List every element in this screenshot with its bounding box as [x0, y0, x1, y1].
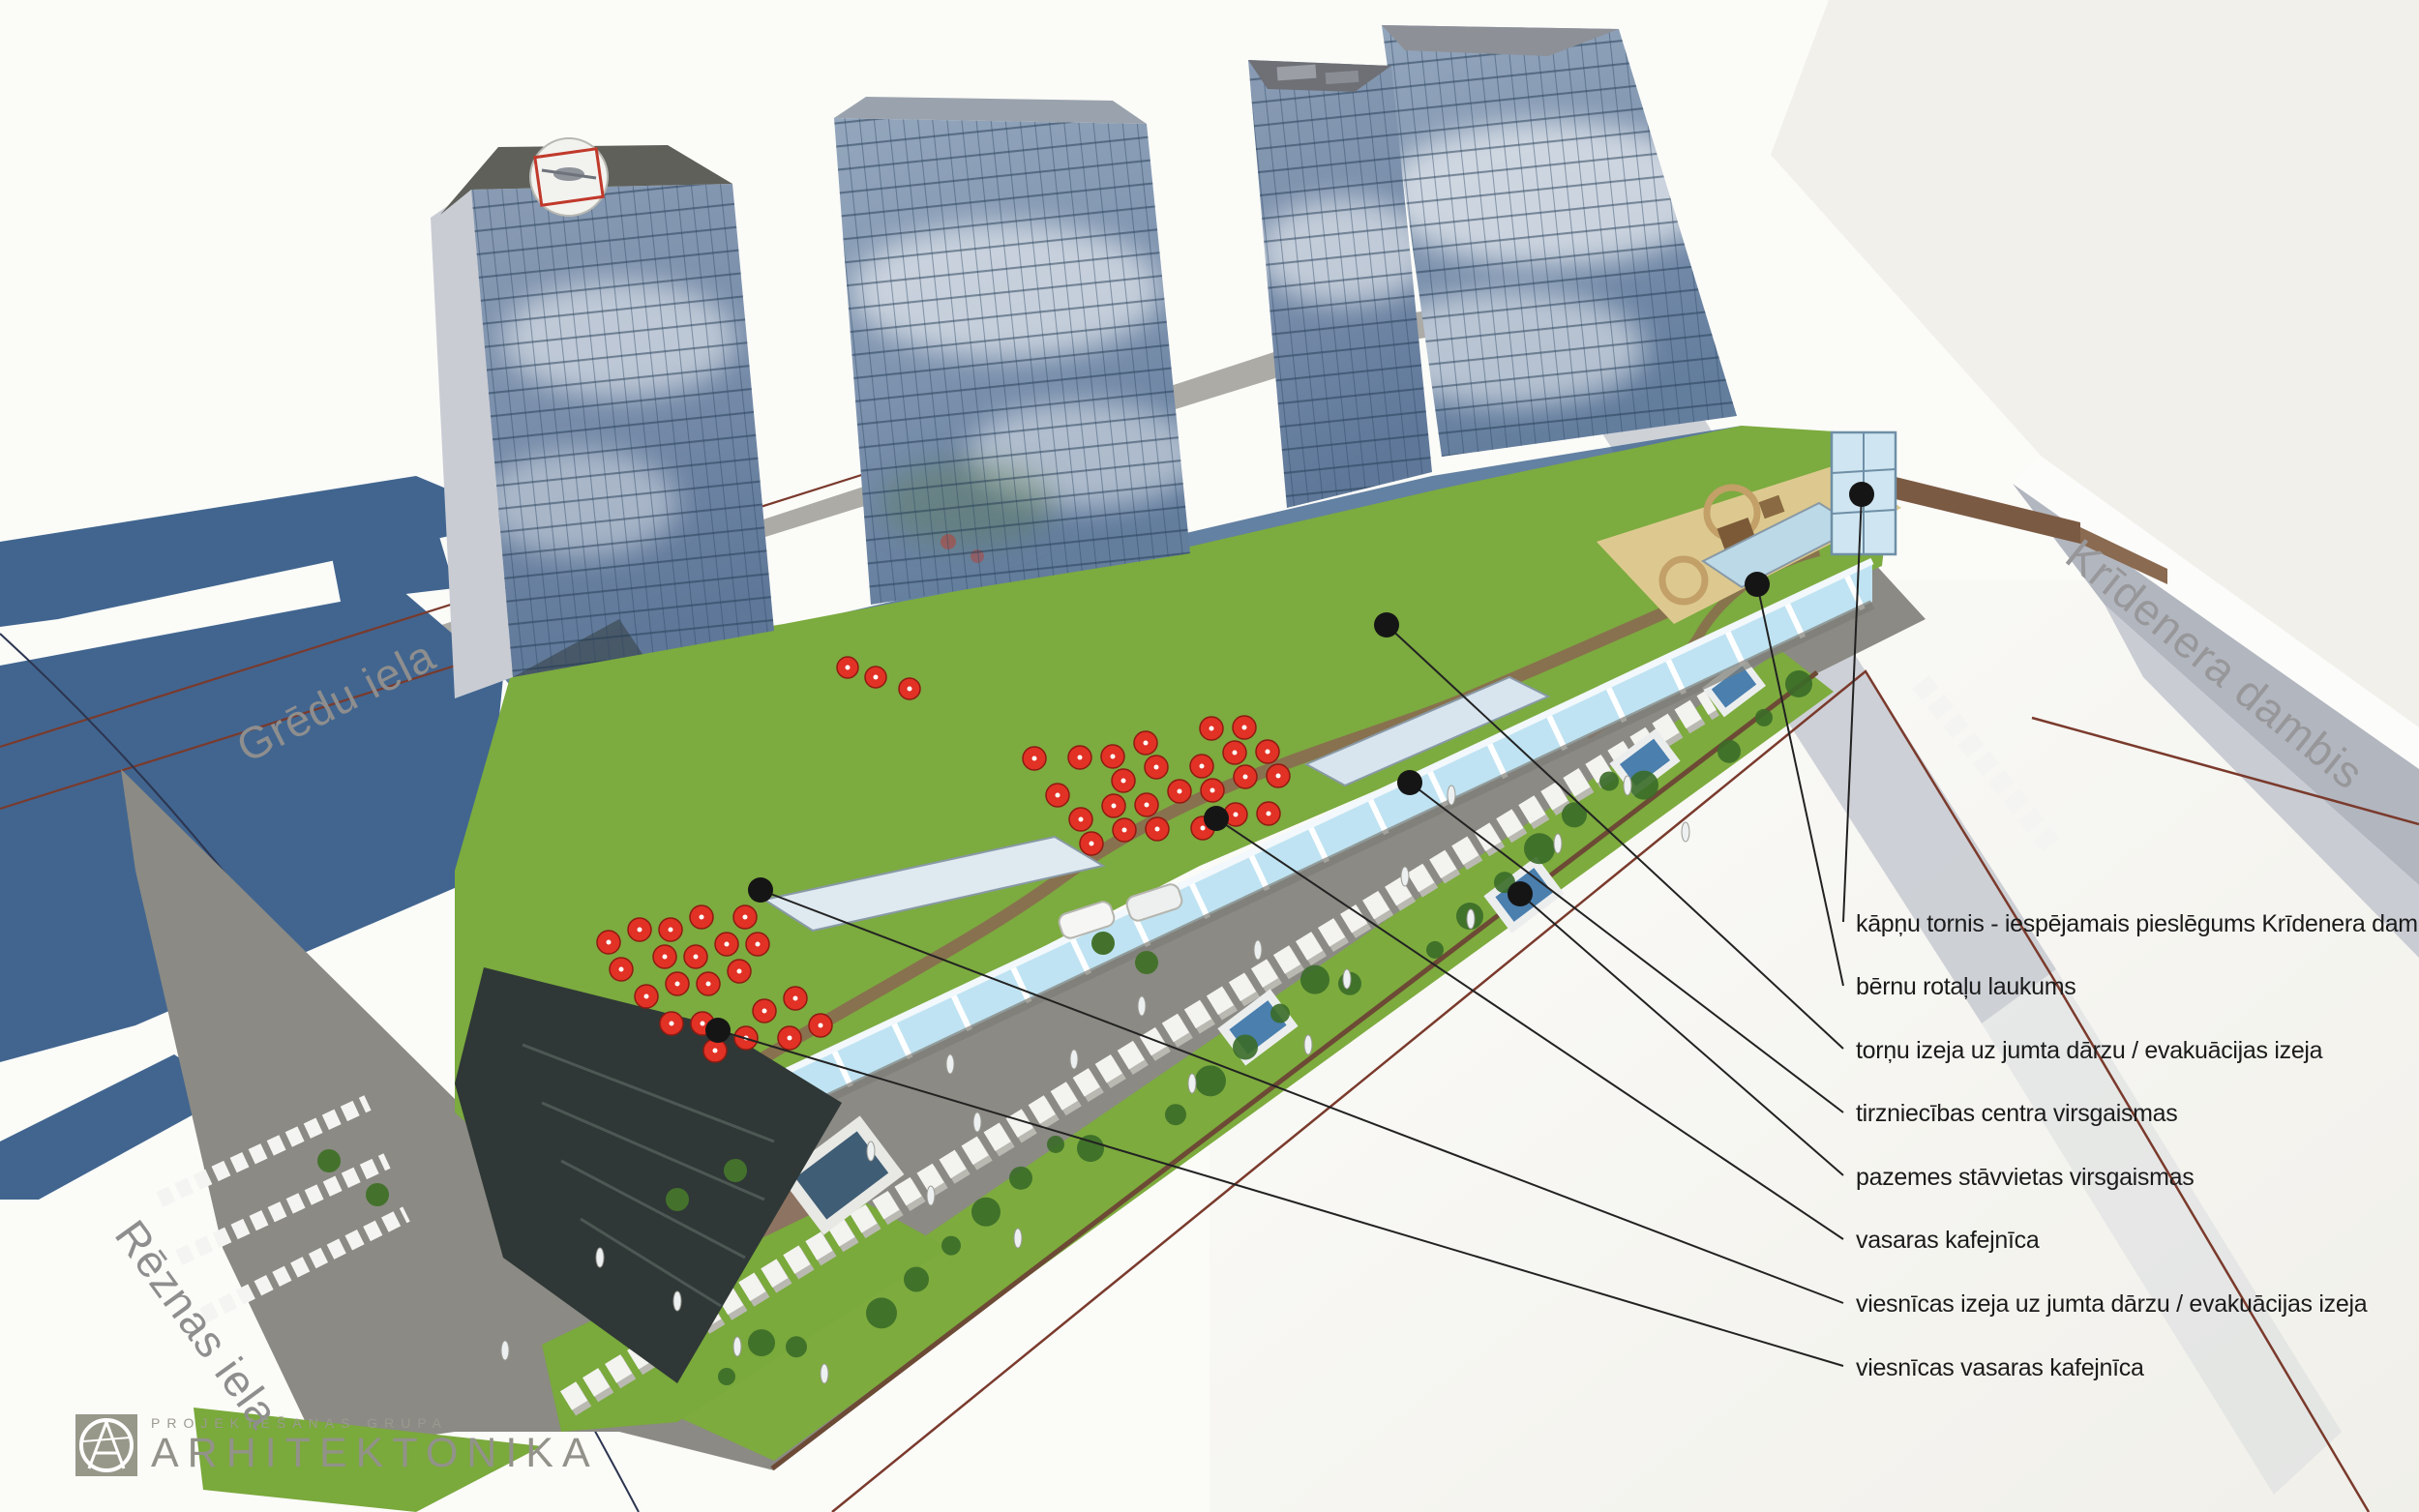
- callout-dot: [1374, 612, 1399, 637]
- callout-label-8: viesnīcas vasaras kafejnīca: [1856, 1354, 2144, 1382]
- callout-dot: [748, 877, 773, 903]
- site-plan-rendering: [0, 0, 2419, 1512]
- logo-group-line: PROJEKTĒŠANAS GRUPA: [151, 1415, 599, 1431]
- logo-name: ARHITEKTONIKA: [151, 1433, 599, 1475]
- callout-label-1: kāpņu tornis - iespējamais pieslēgums Kr…: [1856, 910, 2419, 938]
- callout-dot: [1849, 482, 1874, 507]
- callout-label-5: pazemes stāvvietas virsgaismas: [1856, 1164, 2194, 1192]
- tower-1: [431, 138, 774, 716]
- helipad: [530, 138, 608, 216]
- callout-dot: [705, 1018, 731, 1043]
- callout-dot: [1745, 572, 1770, 597]
- callout-label-7: viesnīcas izeja uz jumta dārzu / evakuāc…: [1856, 1290, 2367, 1319]
- logo: PROJEKTĒŠANAS GRUPA ARHITEKTONIKA: [75, 1414, 599, 1476]
- logo-emblem-icon: [75, 1414, 137, 1476]
- callout-dot: [1397, 770, 1422, 795]
- callout-label-2: bērnu rotaļu laukums: [1856, 973, 2076, 1001]
- callout-dot: [1508, 881, 1533, 906]
- callout-label-6: vasaras kafejnīca: [1856, 1227, 2039, 1255]
- tower-2: [834, 97, 1200, 605]
- callout-label-4: tirzniecības centra virsgaismas: [1856, 1100, 2178, 1128]
- callout-dot: [1204, 806, 1229, 831]
- callout-label-3: torņu izeja uz jumta dārzu / evakuācijas…: [1856, 1037, 2322, 1065]
- architectural-site-rendering: kāpņu tornis - iespējamais pieslēgums Kr…: [0, 0, 2419, 1512]
